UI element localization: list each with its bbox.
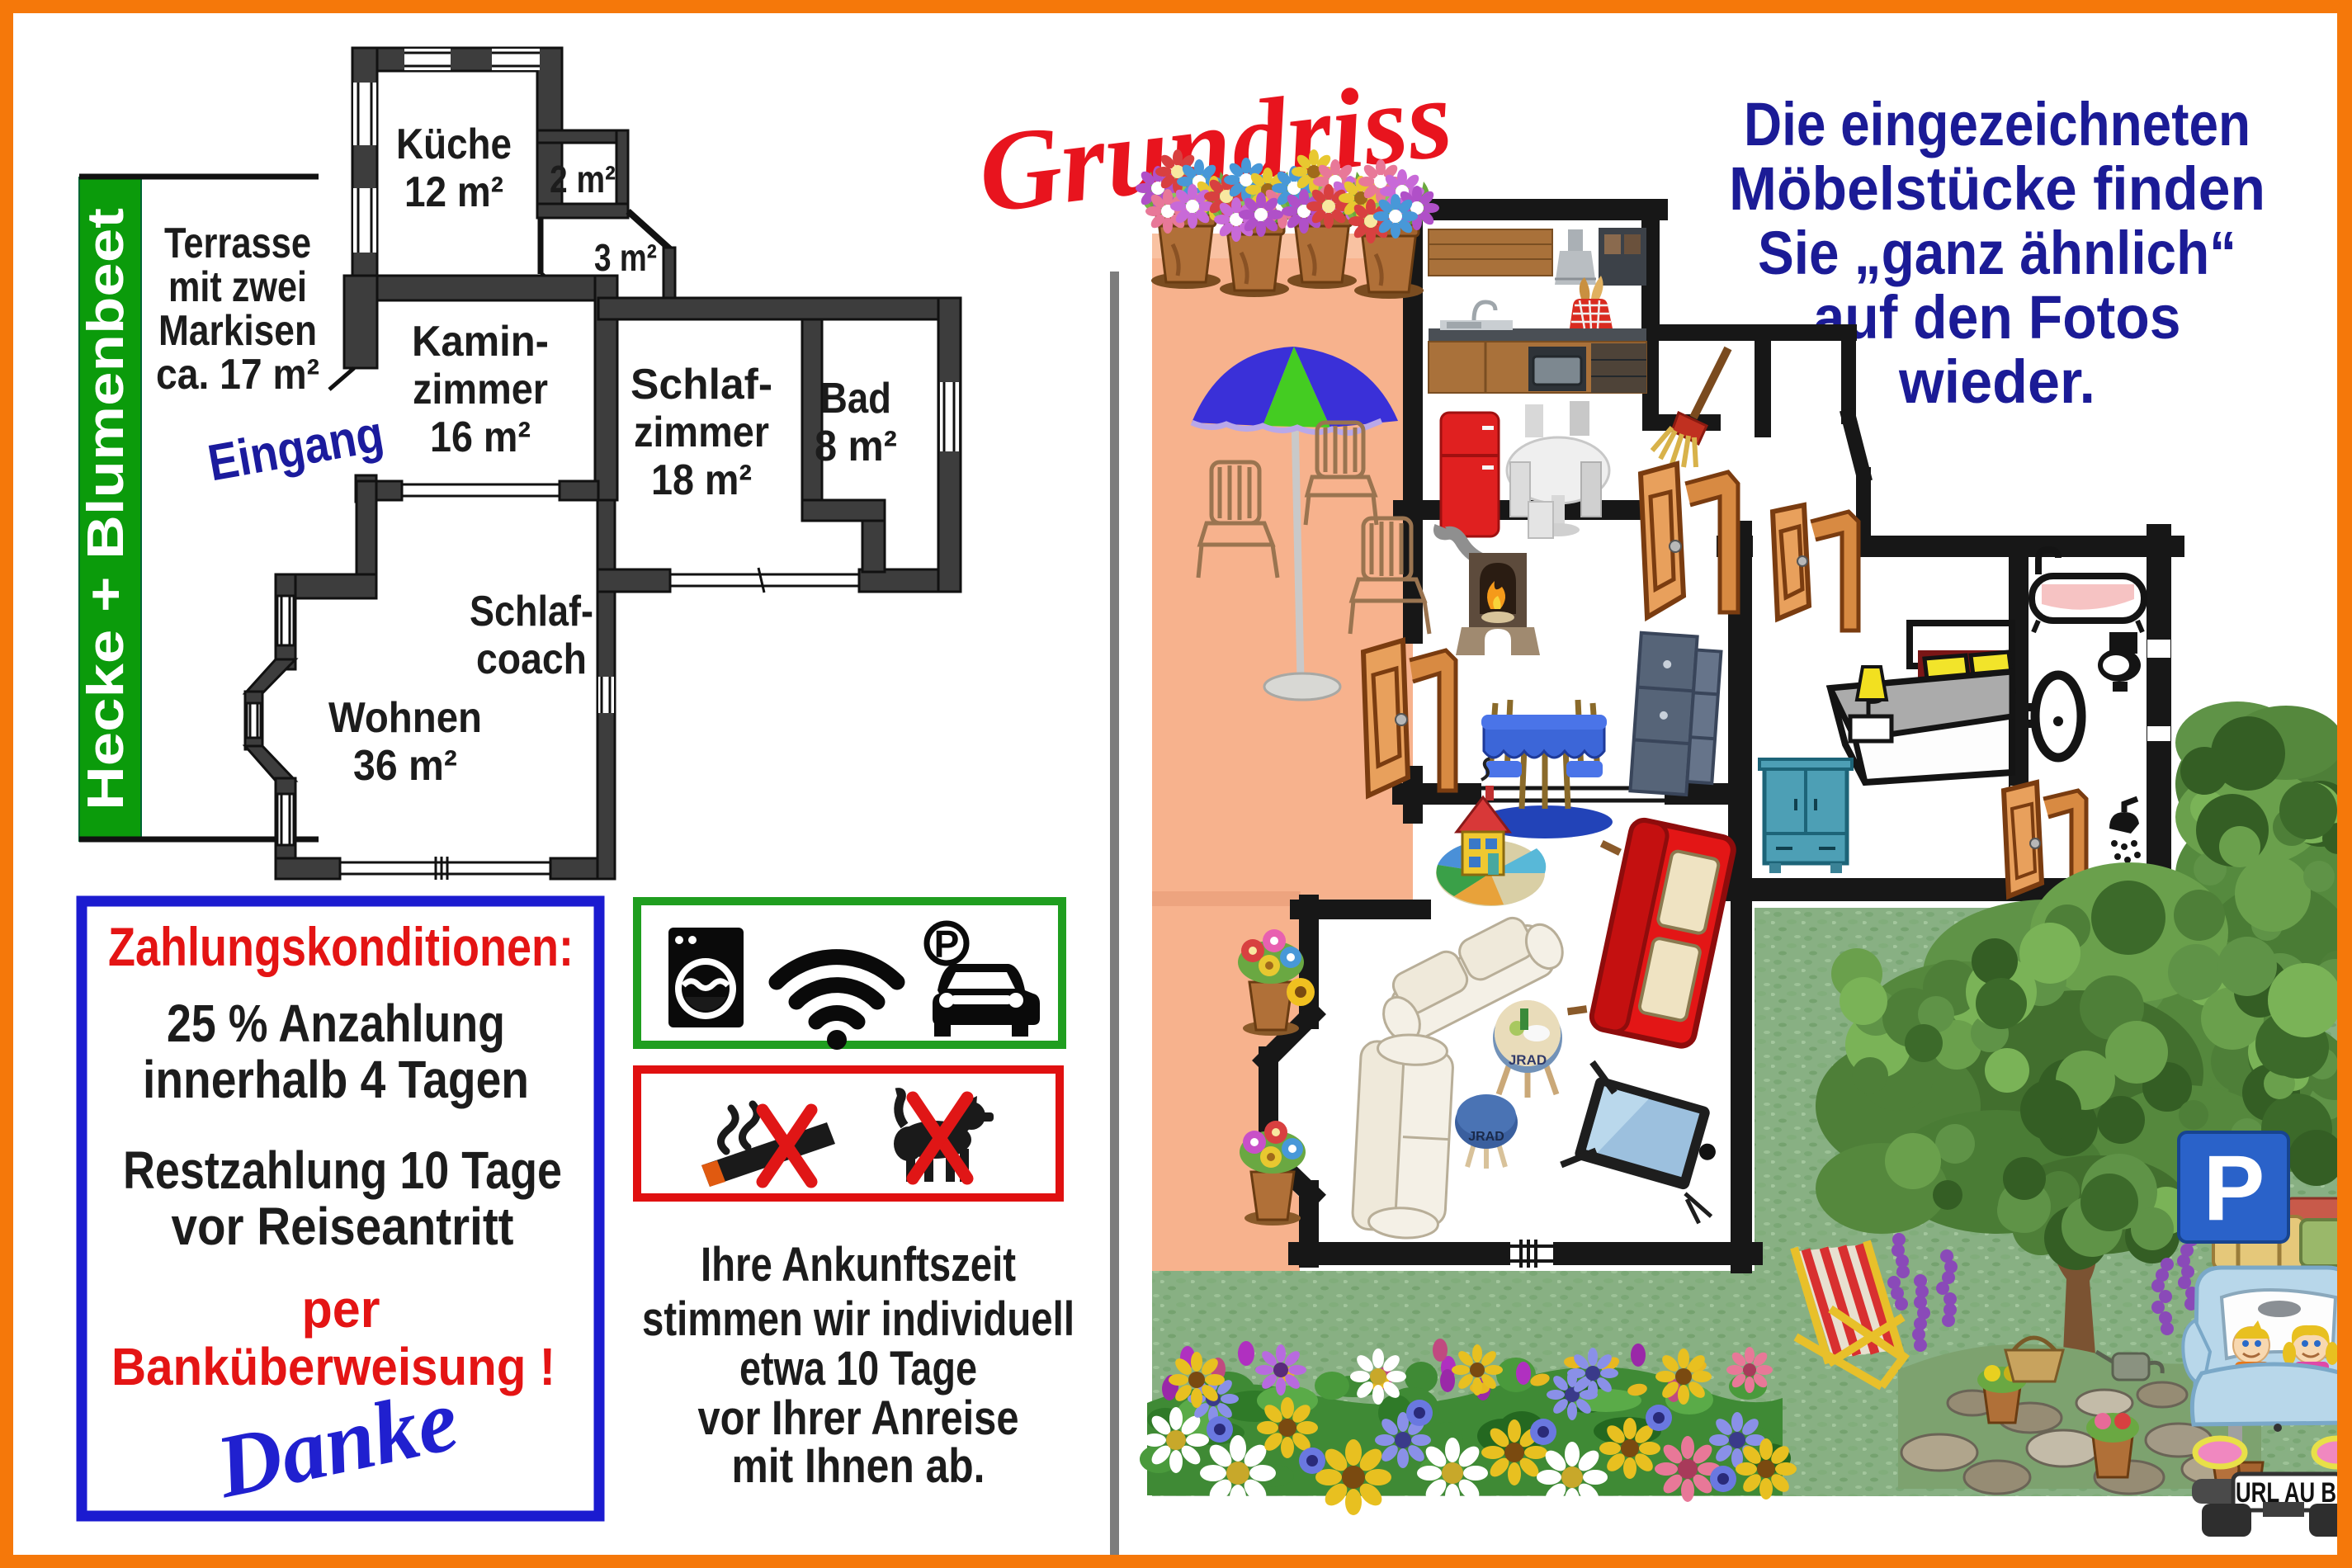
svg-text:36 m²: 36 m² <box>353 742 457 790</box>
svg-text:Markisen: Markisen <box>158 307 317 355</box>
svg-text:Küche: Küche <box>396 120 512 168</box>
svg-text:Schlaf-: Schlaf- <box>470 588 593 635</box>
svg-text:Bad: Bad <box>820 375 891 423</box>
svg-text:JRAD: JRAD <box>1468 1130 1504 1144</box>
svg-text:Terrasse: Terrasse <box>164 220 311 267</box>
svg-text:coach: coach <box>476 635 587 683</box>
svg-text:2 m²: 2 m² <box>550 158 616 201</box>
svg-text:Wohnen: Wohnen <box>328 694 482 742</box>
svg-text:Die eingezeichneten: Die eingezeichneten <box>1744 90 2250 158</box>
svg-text:per: per <box>302 1279 380 1339</box>
svg-text:vor Reiseantritt: vor Reiseantritt <box>172 1197 514 1256</box>
svg-text:Schlaf-: Schlaf- <box>631 361 772 409</box>
svg-text:P: P <box>934 923 960 966</box>
svg-text:zimmer: zimmer <box>413 366 548 413</box>
svg-text:etwa 10 Tage: etwa 10 Tage <box>739 1342 977 1396</box>
svg-text:3 m²: 3 m² <box>594 236 657 279</box>
svg-text:12 m²: 12 m² <box>404 168 503 216</box>
svg-text:Restzahlung 10 Tage: Restzahlung 10 Tage <box>123 1141 562 1200</box>
svg-text:16 m²: 16 m² <box>430 413 531 461</box>
svg-text:mit zwei: mit zwei <box>168 263 307 311</box>
svg-text:18 m²: 18 m² <box>651 456 752 504</box>
svg-text:ca. 17 m²: ca. 17 m² <box>156 351 319 399</box>
svg-text:innerhalb 4 Tagen: innerhalb 4 Tagen <box>143 1050 529 1109</box>
svg-text:Kamin-: Kamin- <box>412 318 549 366</box>
svg-text:zimmer: zimmer <box>634 409 769 456</box>
svg-text:JRAD: JRAD <box>1509 1052 1547 1068</box>
svg-text:Sie „ganz ähnlich“: Sie „ganz ähnlich“ <box>1758 219 2236 287</box>
svg-text:Ihre Ankunftszeit: Ihre Ankunftszeit <box>701 1238 1016 1292</box>
svg-text:Zahlungskonditionen:: Zahlungskonditionen: <box>108 916 574 977</box>
svg-text:stimmen wir individuell: stimmen wir individuell <box>642 1292 1074 1346</box>
svg-text:8 m²: 8 m² <box>815 423 897 470</box>
svg-text:mit Ihnen ab.: mit Ihnen ab. <box>732 1439 985 1493</box>
svg-text:Hecke + Blumenbeet: Hecke + Blumenbeet <box>78 208 135 810</box>
svg-text:25 % Anzahlung: 25 % Anzahlung <box>167 994 505 1053</box>
svg-text:wieder.: wieder. <box>1898 347 2095 416</box>
svg-text:Möbelstücke finden: Möbelstücke finden <box>1729 154 2265 223</box>
svg-text:P: P <box>2203 1136 2265 1240</box>
svg-text:auf den Fotos: auf den Fotos <box>1814 283 2181 352</box>
svg-text:Banküberweisung !: Banküberweisung ! <box>111 1337 555 1396</box>
svg-text:vor Ihrer Anreise: vor Ihrer Anreise <box>698 1391 1019 1445</box>
